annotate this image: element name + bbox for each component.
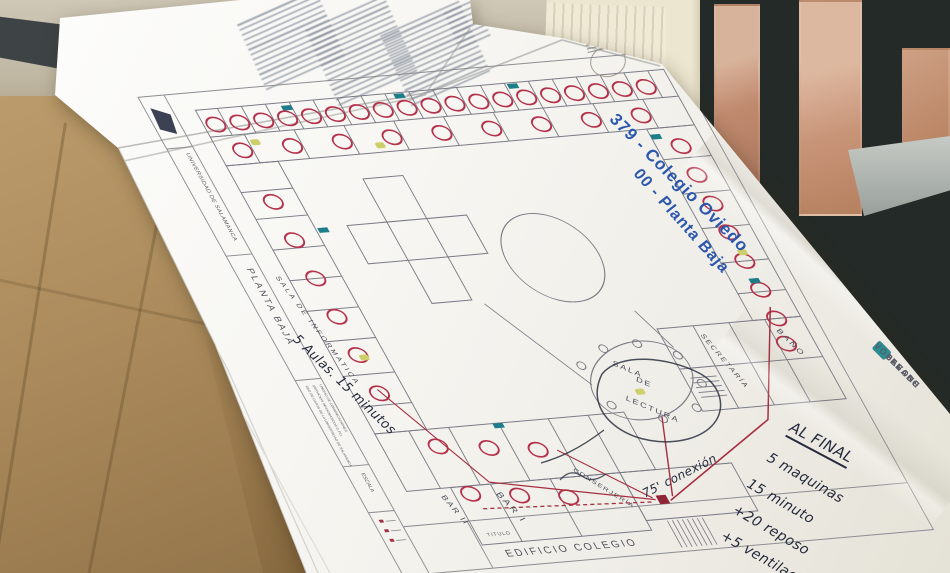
- cable-junction: [656, 495, 671, 504]
- room-label-lectura-2: DE: [636, 375, 653, 390]
- room-label-bar1: BAR I: [494, 490, 529, 524]
- floor-label: PLANTA BAJA: [245, 268, 298, 346]
- escala-label: ESCALA: [359, 473, 375, 493]
- titulo-label: TITULO: [486, 531, 513, 539]
- photo-scene: UNIVERSIDAD DE SALAMANCA PLANTA BAJA RED…: [0, 0, 950, 573]
- university-logo: [148, 107, 181, 135]
- university-label: UNIVERSIDAD DE SALAMANCA: [184, 153, 238, 241]
